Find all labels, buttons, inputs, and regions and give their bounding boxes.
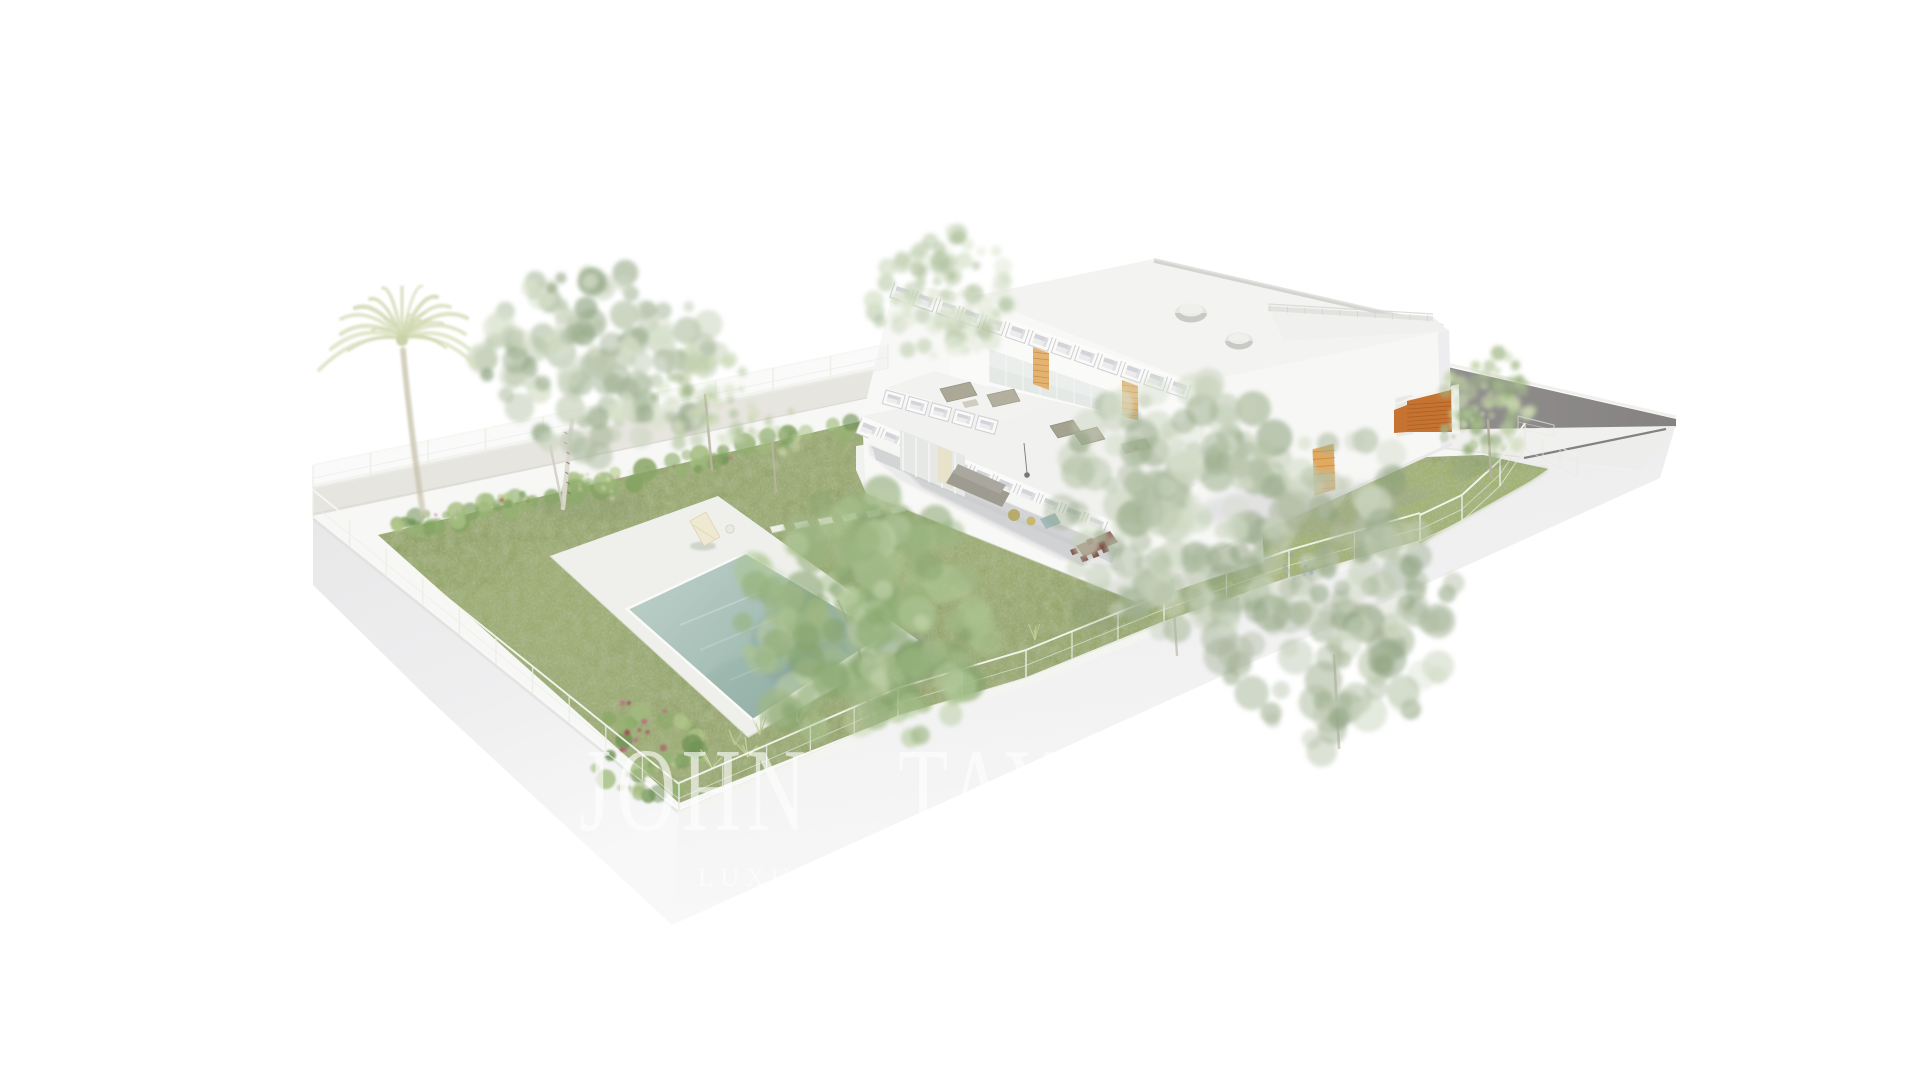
svg-text:JOHN: JOHN (579, 725, 812, 856)
svg-text:LUXURY REAL ESTATE: LUXURY REAL ESTATE (698, 863, 1093, 892)
svg-text:TAYLOR: TAYLOR (898, 725, 1251, 856)
